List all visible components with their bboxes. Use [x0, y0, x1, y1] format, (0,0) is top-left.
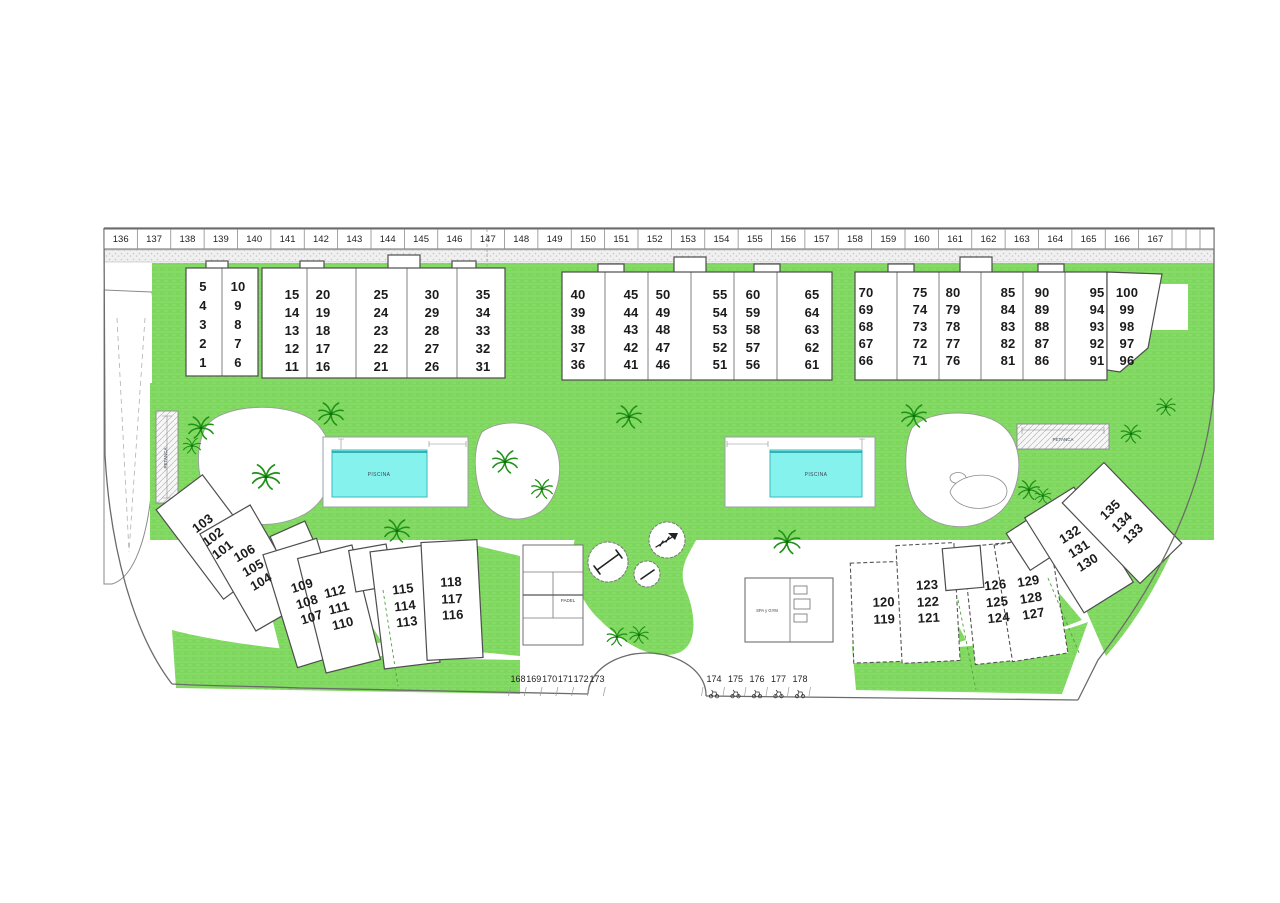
unit-number-column: 10099989796	[1116, 284, 1138, 369]
unit-number: 60	[746, 286, 761, 304]
unit-number: 70	[859, 284, 874, 301]
unit-number: 32	[476, 340, 491, 358]
unit-number-column: 4039383736	[571, 286, 586, 374]
parking-space-number: 136	[104, 230, 137, 248]
unit-number: 23	[374, 322, 389, 340]
parking-space-number: 156	[772, 230, 805, 248]
parking-space-number: 146	[438, 230, 471, 248]
unit-number: 50	[656, 286, 671, 304]
unit-number: 12	[285, 340, 300, 358]
unit-number: 59	[746, 304, 761, 322]
unit-number: 63	[805, 321, 820, 339]
unit-number: 73	[913, 318, 928, 335]
unit-number: 127	[1021, 604, 1046, 624]
unit-number: 67	[859, 335, 874, 352]
unit-number-column: 8584838281	[1001, 284, 1016, 369]
unit-number: 18	[316, 322, 331, 340]
unit-number: 93	[1090, 318, 1105, 335]
building-unit-numbers: 123122121	[916, 577, 941, 628]
unit-number: 1	[199, 353, 206, 372]
unit-number: 91	[1090, 352, 1105, 369]
unit-number: 81	[1001, 352, 1016, 369]
parking-space-number: 155	[738, 230, 771, 248]
unit-number-column: 2019181716	[316, 286, 331, 376]
unit-number: 38	[571, 321, 586, 339]
parking-space-number: 164	[1039, 230, 1072, 248]
unit-number: 88	[1035, 318, 1050, 335]
parking-space-number: 165	[1072, 230, 1105, 248]
unit-number: 83	[1001, 318, 1016, 335]
building-unit-numbers: 106105104	[231, 541, 275, 595]
unit-number: 79	[946, 301, 961, 318]
parking-space-number: 142	[304, 230, 337, 248]
building-unit-numbers: 132131130	[1056, 522, 1101, 576]
parking-space-number: 166	[1105, 230, 1138, 248]
parking-space-number: 168	[510, 674, 525, 684]
parking-space-number: 143	[338, 230, 371, 248]
parking-space-number: 175	[728, 674, 743, 684]
unit-number: 36	[571, 356, 586, 374]
parking-space-number: 167	[1139, 230, 1172, 248]
unit-number: 24	[374, 304, 389, 322]
unit-number-column: 3534333231	[476, 286, 491, 376]
unit-number: 120	[872, 594, 895, 611]
parking-space-number: 140	[238, 230, 271, 248]
unit-number: 68	[859, 318, 874, 335]
unit-number-column: 9089888786	[1035, 284, 1050, 369]
unit-number-column: 1514131211	[285, 286, 300, 376]
parking-space-number: 137	[137, 230, 170, 248]
unit-number-column: 7069686766	[859, 284, 874, 369]
unit-number: 76	[946, 352, 961, 369]
unit-number: 3	[199, 315, 206, 334]
parking-space-number: 176	[749, 674, 764, 684]
unit-number: 52	[713, 339, 728, 357]
unit-number: 19	[316, 304, 331, 322]
unit-number: 51	[713, 356, 728, 374]
parking-space-number: 158	[838, 230, 871, 248]
unit-number: 43	[624, 321, 639, 339]
building-unit-numbers: 103102101	[189, 511, 237, 564]
unit-number: 15	[285, 286, 300, 304]
unit-number: 95	[1090, 284, 1105, 301]
unit-number-column: 2524232221	[374, 286, 389, 376]
unit-number: 57	[746, 339, 761, 357]
unit-number: 78	[946, 318, 961, 335]
parking-space-number: 163	[1005, 230, 1038, 248]
parking-space-number: 151	[605, 230, 638, 248]
unit-number: 9	[231, 296, 246, 315]
unit-number: 71	[913, 352, 928, 369]
site-plan: PETANCA PETANCA PISCINA PISCINA PADEL SP…	[0, 0, 1280, 903]
unit-number-column: 7574737271	[913, 284, 928, 369]
unit-number-column: 5049484746	[656, 286, 671, 374]
unit-number: 77	[946, 335, 961, 352]
unit-number: 119	[873, 611, 896, 628]
parking-space-number: 172	[574, 674, 589, 684]
parking-space-number: 178	[792, 674, 807, 684]
unit-number: 31	[476, 358, 491, 376]
unit-number: 49	[656, 304, 671, 322]
parking-space-number: 171	[558, 674, 573, 684]
unit-number: 17	[316, 340, 331, 358]
unit-number: 75	[913, 284, 928, 301]
unit-number: 2	[199, 334, 206, 353]
unit-number: 113	[395, 613, 418, 632]
parking-space-number: 153	[671, 230, 704, 248]
unit-number: 40	[571, 286, 586, 304]
parking-space-number: 177	[771, 674, 786, 684]
unit-number: 89	[1035, 301, 1050, 318]
unit-number: 29	[425, 304, 440, 322]
parking-space-number: 161	[938, 230, 971, 248]
unit-number-column: 4544434241	[624, 286, 639, 374]
unit-number: 30	[425, 286, 440, 304]
unit-number: 62	[805, 339, 820, 357]
unit-number: 87	[1035, 335, 1050, 352]
unit-number: 54	[713, 304, 728, 322]
unit-number: 48	[656, 321, 671, 339]
unit-number-column: 3029282726	[425, 286, 440, 376]
unit-number: 94	[1090, 301, 1105, 318]
unit-number: 126	[983, 576, 1007, 595]
unit-number: 14	[285, 304, 300, 322]
parking-space-number: 138	[171, 230, 204, 248]
unit-number: 37	[571, 339, 586, 357]
unit-number: 124	[987, 609, 1011, 628]
unit-number: 13	[285, 322, 300, 340]
parking-space-number: 170	[542, 674, 557, 684]
unit-number: 117	[441, 590, 463, 608]
parking-space-number: 149	[538, 230, 571, 248]
unit-number: 80	[946, 284, 961, 301]
building-unit-numbers: 126125124	[983, 576, 1010, 628]
unit-number: 44	[624, 304, 639, 322]
unit-number: 99	[1116, 301, 1138, 318]
unit-number-column: 8079787776	[946, 284, 961, 369]
unit-number: 115	[391, 580, 414, 599]
unit-number: 61	[805, 356, 820, 374]
unit-number: 85	[1001, 284, 1016, 301]
parking-space-number: 145	[404, 230, 437, 248]
unit-number: 33	[476, 322, 491, 340]
unit-number: 6	[231, 353, 246, 372]
unit-number: 69	[859, 301, 874, 318]
unit-number: 82	[1001, 335, 1016, 352]
building-unit-numbers: 135134133	[1097, 496, 1147, 547]
unit-number-column: 9594939291	[1090, 284, 1105, 369]
building-unit-numbers: 109108107	[289, 575, 325, 629]
parking-space-number: 150	[571, 230, 604, 248]
plan-labels-layer: 1361371381391401411421431441451461471481…	[0, 0, 1280, 903]
building-unit-numbers: 115114113	[391, 580, 418, 632]
unit-number: 20	[316, 286, 331, 304]
unit-number: 16	[316, 358, 331, 376]
unit-number: 11	[285, 358, 300, 376]
unit-number: 4	[199, 296, 206, 315]
unit-number-column: 109876	[231, 277, 246, 372]
unit-number: 96	[1116, 352, 1138, 369]
unit-number: 123	[916, 577, 939, 595]
unit-number: 35	[476, 286, 491, 304]
unit-number: 121	[917, 610, 940, 628]
unit-number: 84	[1001, 301, 1016, 318]
unit-number-column: 6059585756	[746, 286, 761, 374]
unit-number: 66	[859, 352, 874, 369]
parking-space-number: 162	[972, 230, 1005, 248]
unit-number: 64	[805, 304, 820, 322]
unit-number: 46	[656, 356, 671, 374]
parking-space-number: 144	[371, 230, 404, 248]
parking-space-number: 147	[471, 230, 504, 248]
unit-number: 58	[746, 321, 761, 339]
unit-number: 47	[656, 339, 671, 357]
unit-number: 74	[913, 301, 928, 318]
building-unit-numbers: 112111110	[323, 581, 356, 634]
unit-number: 42	[624, 339, 639, 357]
unit-number: 97	[1116, 335, 1138, 352]
unit-number: 10	[231, 277, 246, 296]
building-unit-numbers: 120119	[872, 594, 895, 628]
unit-number: 56	[746, 356, 761, 374]
parking-space-number: 160	[905, 230, 938, 248]
parking-space-number: 159	[872, 230, 905, 248]
unit-number: 122	[916, 593, 939, 611]
unit-number: 100	[1116, 284, 1138, 301]
unit-number: 110	[331, 613, 356, 634]
unit-number-column: 5554535251	[713, 286, 728, 374]
unit-number: 92	[1090, 335, 1105, 352]
unit-number: 28	[425, 322, 440, 340]
unit-number: 72	[913, 335, 928, 352]
unit-number: 8	[231, 315, 246, 334]
unit-number: 5	[199, 277, 206, 296]
parking-space-number: 154	[705, 230, 738, 248]
unit-number: 98	[1116, 318, 1138, 335]
unit-number: 53	[713, 321, 728, 339]
unit-number: 39	[571, 304, 586, 322]
unit-number: 116	[442, 607, 464, 625]
unit-number-column: 6564636261	[805, 286, 820, 374]
unit-number: 41	[624, 356, 639, 374]
unit-number: 65	[805, 286, 820, 304]
parking-space-number: 139	[204, 230, 237, 248]
parking-space-number: 169	[526, 674, 541, 684]
parking-space-number: 174	[706, 674, 721, 684]
unit-number: 21	[374, 358, 389, 376]
parking-space-number: 141	[271, 230, 304, 248]
parking-space-number: 152	[638, 230, 671, 248]
building-unit-numbers: 118117116	[440, 574, 464, 625]
unit-number: 90	[1035, 284, 1050, 301]
unit-number: 55	[713, 286, 728, 304]
building-unit-numbers: 129128127	[1016, 572, 1046, 624]
parking-space-number: 157	[805, 230, 838, 248]
unit-number: 27	[425, 340, 440, 358]
unit-number: 34	[476, 304, 491, 322]
unit-number: 45	[624, 286, 639, 304]
parking-space-number: 173	[589, 674, 604, 684]
unit-number: 22	[374, 340, 389, 358]
unit-number: 7	[231, 334, 246, 353]
unit-number: 25	[374, 286, 389, 304]
unit-number-column: 54321	[199, 277, 206, 372]
unit-number: 86	[1035, 352, 1050, 369]
parking-space-number: 148	[505, 230, 538, 248]
unit-number: 118	[440, 574, 462, 592]
unit-number: 26	[425, 358, 440, 376]
